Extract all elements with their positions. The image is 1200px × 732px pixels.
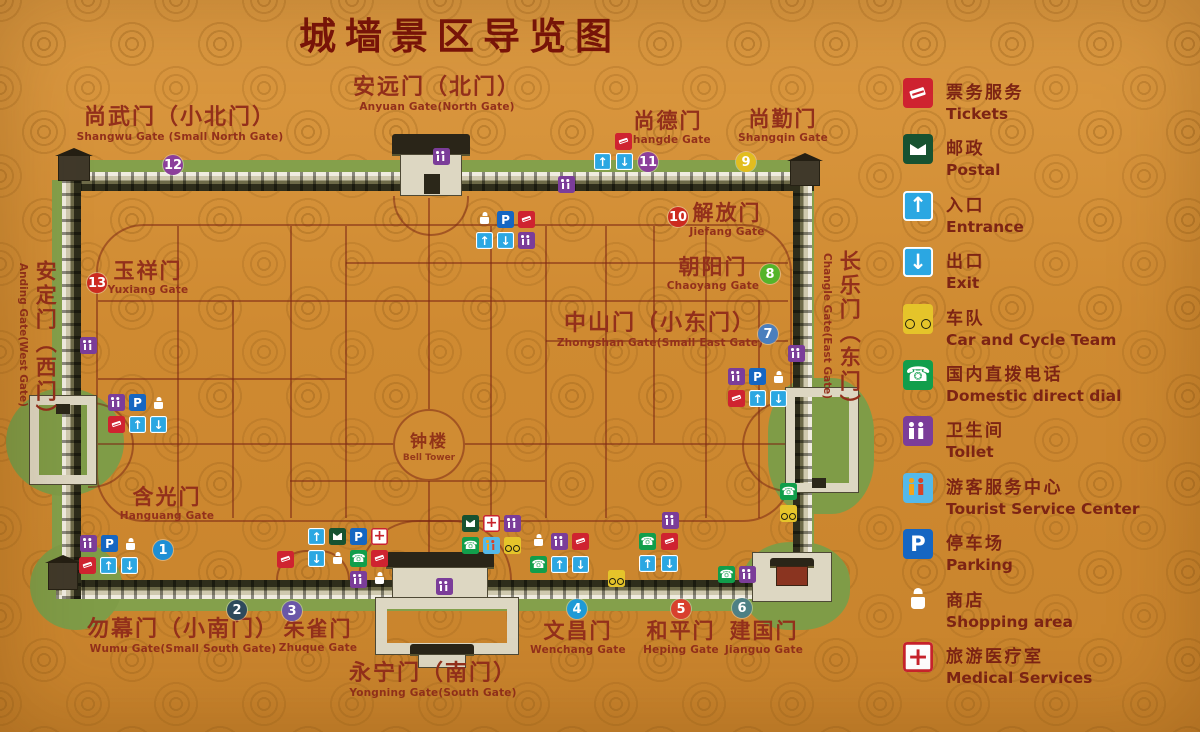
main-north-south-street — [428, 198, 430, 556]
postal-icon — [462, 515, 479, 532]
phone-icon — [780, 483, 797, 500]
gate-name-en: Chaoyang Gate — [563, 281, 863, 293]
gate-label-jianguo: 建国门Jianguo Gate — [614, 620, 914, 656]
gate-label-anyuan: 安远门（北门）Anyuan Gate(North Gate) — [287, 76, 587, 113]
legend-label-en: Tollet — [946, 443, 1005, 461]
gate-marker-2: 2 — [227, 600, 247, 620]
gate-marker-11: 11 — [638, 152, 658, 172]
gate-name-en: Jiefang Gate — [577, 227, 877, 239]
bell-tower-name-en: Bell Tower — [403, 453, 455, 463]
legend-label-zh: 车队 — [946, 304, 1116, 329]
legend-item-bike: 车队Car and Cycle Team — [903, 304, 1198, 360]
gate-name-en: Shangwu Gate (Small North Gate) — [30, 132, 330, 144]
exit-icon — [770, 390, 787, 407]
tickets-icon — [728, 390, 745, 407]
gate-name-en: Hanguang Gate — [17, 511, 317, 523]
legend-label-zh: 游客服务中心 — [946, 473, 1140, 498]
legend-text: 邮政Postal — [946, 134, 1000, 179]
postal-icon — [329, 528, 346, 545]
tickets-icon — [108, 416, 125, 433]
tickets-icon — [903, 78, 933, 108]
legend-label-zh: 卫生间 — [946, 416, 1005, 441]
toilet-icon — [903, 416, 933, 446]
gate-name-en: Zhuque Gate — [168, 643, 468, 655]
tickets-icon — [79, 557, 96, 574]
legend-label-zh: 出口 — [946, 247, 985, 272]
gate-label-chaoyang: 朝阳门Chaoyang Gate — [563, 256, 863, 292]
legend-label-en: Entrance — [946, 218, 1024, 236]
gate-label-shangwu: 尚武门（小北门）Shangwu Gate (Small North Gate) — [30, 106, 330, 143]
legend-item-entrance: 入口Entrance — [903, 191, 1198, 247]
toilet-icon — [662, 512, 679, 529]
city-wall-map-card: 城墙景区导览图 — [0, 0, 1200, 732]
exit-icon — [903, 247, 933, 277]
entrance-icon — [476, 232, 493, 249]
legend-label-zh: 入口 — [946, 191, 1024, 216]
bag-icon — [150, 396, 167, 413]
phone-icon — [462, 537, 479, 554]
medical-icon — [371, 528, 388, 545]
bell-tower-name-zh: 钟楼 — [410, 427, 448, 452]
legend-text: 国内直拨电话Domestic direct dial — [946, 360, 1121, 405]
gate-label-yuxiang: 玉祥门Yuxiang Gate — [0, 260, 298, 296]
bag-icon — [122, 537, 139, 554]
gate-name-zh: 玉祥门 — [0, 260, 298, 284]
gate-marker-7: 7 — [758, 324, 778, 344]
toilet-icon — [728, 368, 745, 385]
toilet-icon — [80, 337, 97, 354]
gate-label-hanguang: 含光门Hanguang Gate — [17, 486, 317, 522]
gate-marker-6: 6 — [732, 598, 752, 618]
exit-icon — [497, 232, 514, 249]
toilet-icon — [788, 345, 805, 362]
parking-icon — [101, 535, 118, 552]
gate-label-jiefang: 解放门Jiefang Gate — [577, 202, 877, 238]
tourist-icon — [903, 473, 933, 503]
legend-text: 卫生间Tollet — [946, 416, 1005, 461]
parking-icon — [903, 529, 933, 559]
bag-icon — [530, 533, 547, 550]
corner-tower-ne — [790, 160, 820, 186]
legend-label-zh: 邮政 — [946, 134, 1000, 159]
exit-icon — [308, 550, 325, 567]
entrance-icon — [100, 557, 117, 574]
entrance-icon — [129, 416, 146, 433]
tourist-icon — [483, 537, 500, 554]
gate-name-en: Yongning Gate(South Gate) — [283, 688, 583, 700]
tickets-icon — [371, 550, 388, 567]
medical-icon — [483, 515, 500, 532]
legend-label-en: Shopping area — [946, 613, 1073, 631]
gate-marker-12: 12 — [163, 155, 183, 175]
tickets-icon — [518, 211, 535, 228]
entrance-icon — [639, 555, 656, 572]
legend-item-toilet: 卫生间Tollet — [903, 416, 1198, 472]
bag-icon — [903, 586, 933, 616]
phone-icon — [903, 360, 933, 390]
bell-tower: 钟楼 Bell Tower — [393, 409, 465, 481]
legend-label-en: Medical Services — [946, 669, 1092, 687]
gate-marker-4: 4 — [567, 599, 587, 619]
legend-label-zh: 商店 — [946, 586, 1073, 611]
west-gate-doorway — [56, 404, 70, 414]
wall-west — [62, 172, 81, 599]
legend-item-parking: 停车场Parking — [903, 529, 1198, 585]
gate-name-en: Yuxiang Gate — [0, 285, 298, 297]
parking-icon — [350, 528, 367, 545]
gate-name-en: Jianguo Gate — [614, 645, 914, 657]
gate-marker-8: 8 — [760, 264, 780, 284]
tickets-icon — [277, 551, 294, 568]
toilet-icon — [350, 571, 367, 588]
bag-icon — [770, 370, 787, 387]
se-pavilion — [776, 566, 808, 586]
legend-text: 停车场Parking — [946, 529, 1013, 574]
gate-name-zh: 尚武门（小北门） — [30, 106, 330, 131]
exit-icon — [150, 416, 167, 433]
gate-name-en: Changle Gate(East Gate) — [820, 253, 832, 399]
phone-icon — [718, 566, 735, 583]
legend-text: 游客服务中心Tourist Service Center — [946, 473, 1140, 518]
legend-label-en: Exit — [946, 274, 985, 292]
parking-icon — [749, 368, 766, 385]
corner-tower-nw — [58, 155, 90, 181]
toilet-icon — [436, 578, 453, 595]
map-title: 城墙景区导览图 — [40, 6, 880, 60]
gate-name-zh: 含光门 — [17, 486, 317, 510]
gate-label-zhuque: 朱雀门Zhuque Gate — [168, 618, 468, 654]
entrance-icon — [308, 528, 325, 545]
bike-icon — [903, 304, 933, 334]
gate-marker-1: 1 — [153, 540, 173, 560]
exit-icon — [616, 153, 633, 170]
gate-marker-5: 5 — [671, 599, 691, 619]
east-gate-doorway — [812, 478, 826, 488]
toilet-icon — [108, 394, 125, 411]
entrance-icon — [594, 153, 611, 170]
parking-icon — [497, 211, 514, 228]
gate-marker-3: 3 — [282, 601, 302, 621]
entrance-icon — [749, 390, 766, 407]
bag-icon — [371, 571, 388, 588]
legend-text: 旅游医疗室Medical Services — [946, 642, 1092, 687]
legend-item-tourist: 游客服务中心Tourist Service Center — [903, 473, 1198, 529]
gate-name-zh: 尚勤门 — [633, 108, 933, 132]
toilet-icon — [739, 566, 756, 583]
entrance-icon — [551, 556, 568, 573]
legend-item-medical: 旅游医疗室Medical Services — [903, 642, 1198, 698]
legend-label-en: Tickets — [946, 105, 1024, 123]
postal-icon — [903, 134, 933, 164]
legend-item-exit: 出口Exit — [903, 247, 1198, 303]
legend-text: 出口Exit — [946, 247, 985, 292]
exit-icon — [661, 555, 678, 572]
exit-icon — [121, 557, 138, 574]
gate-name-en: Shangqin Gate — [633, 133, 933, 145]
parking-icon — [129, 394, 146, 411]
tickets-icon — [661, 533, 678, 550]
toilet-icon — [433, 148, 450, 165]
gate-name-zh: 朱雀门 — [168, 618, 468, 642]
bike-icon — [780, 505, 797, 522]
gate-name-zh: 永宁门（南门） — [283, 662, 583, 687]
gate-marker-10: 10 — [668, 207, 688, 227]
gate-marker-13: 13 — [87, 273, 107, 293]
legend-text: 票务服务Tickets — [946, 78, 1024, 123]
legend-text: 商店Shopping area — [946, 586, 1073, 631]
legend-label-zh: 票务服务 — [946, 78, 1024, 103]
legend-label-en: Postal — [946, 161, 1000, 179]
gate-label-changle: Changle Gate(East Gate)长乐门（东门） — [820, 250, 860, 418]
exit-icon — [572, 556, 589, 573]
legend-item-postal: 邮政Postal — [903, 134, 1198, 190]
legend-text: 车队Car and Cycle Team — [946, 304, 1116, 349]
medical-icon — [903, 642, 933, 672]
gate-name-zh: 长乐门（东门） — [837, 250, 861, 418]
phone-icon — [639, 533, 656, 550]
bag-icon — [476, 211, 493, 228]
legend-label-zh: 旅游医疗室 — [946, 642, 1092, 667]
bag-icon — [329, 551, 346, 568]
north-gate-roof — [392, 134, 470, 156]
corner-tower-sw — [48, 562, 78, 590]
toilet-icon — [551, 533, 568, 550]
phone-icon — [350, 550, 367, 567]
toilet-icon — [504, 515, 521, 532]
legend-item-tickets: 票务服务Tickets — [903, 78, 1198, 134]
legend-item-phone: 国内直拨电话Domestic direct dial — [903, 360, 1198, 416]
north-gate-doorway — [424, 174, 440, 194]
tickets-icon — [572, 533, 589, 550]
legend-label-en: Car and Cycle Team — [946, 331, 1116, 349]
gate-name-zh: 朝阳门 — [563, 256, 863, 280]
legend-label-en: Parking — [946, 556, 1013, 574]
legend-label-zh: 停车场 — [946, 529, 1013, 554]
gate-label-shangqin: 尚勤门Shangqin Gate — [633, 108, 933, 144]
gate-marker-9: 9 — [736, 152, 756, 172]
bike-icon — [504, 537, 521, 554]
legend-label-en: Domestic direct dial — [946, 387, 1121, 405]
toilet-icon — [518, 232, 535, 249]
gate-label-yongning: 永宁门（南门）Yongning Gate(South Gate) — [283, 662, 583, 699]
legend-label-zh: 国内直拨电话 — [946, 360, 1121, 385]
gate-name-zh: 解放门 — [577, 202, 877, 226]
gate-name-zh: 建国门 — [614, 620, 914, 644]
toilet-icon — [80, 535, 97, 552]
legend-text: 入口Entrance — [946, 191, 1024, 236]
phone-icon — [530, 556, 547, 573]
legend-item-bag: 商店Shopping area — [903, 586, 1198, 642]
tickets-icon — [615, 133, 632, 150]
gate-name-zh: 安远门（北门） — [287, 76, 587, 101]
legend: 票务服务Tickets邮政Postal入口Entrance出口Exit车队Car… — [903, 78, 1198, 698]
bike-icon — [608, 570, 625, 587]
entrance-icon — [903, 191, 933, 221]
legend-label-en: Tourist Service Center — [946, 500, 1140, 518]
toilet-icon — [558, 176, 575, 193]
